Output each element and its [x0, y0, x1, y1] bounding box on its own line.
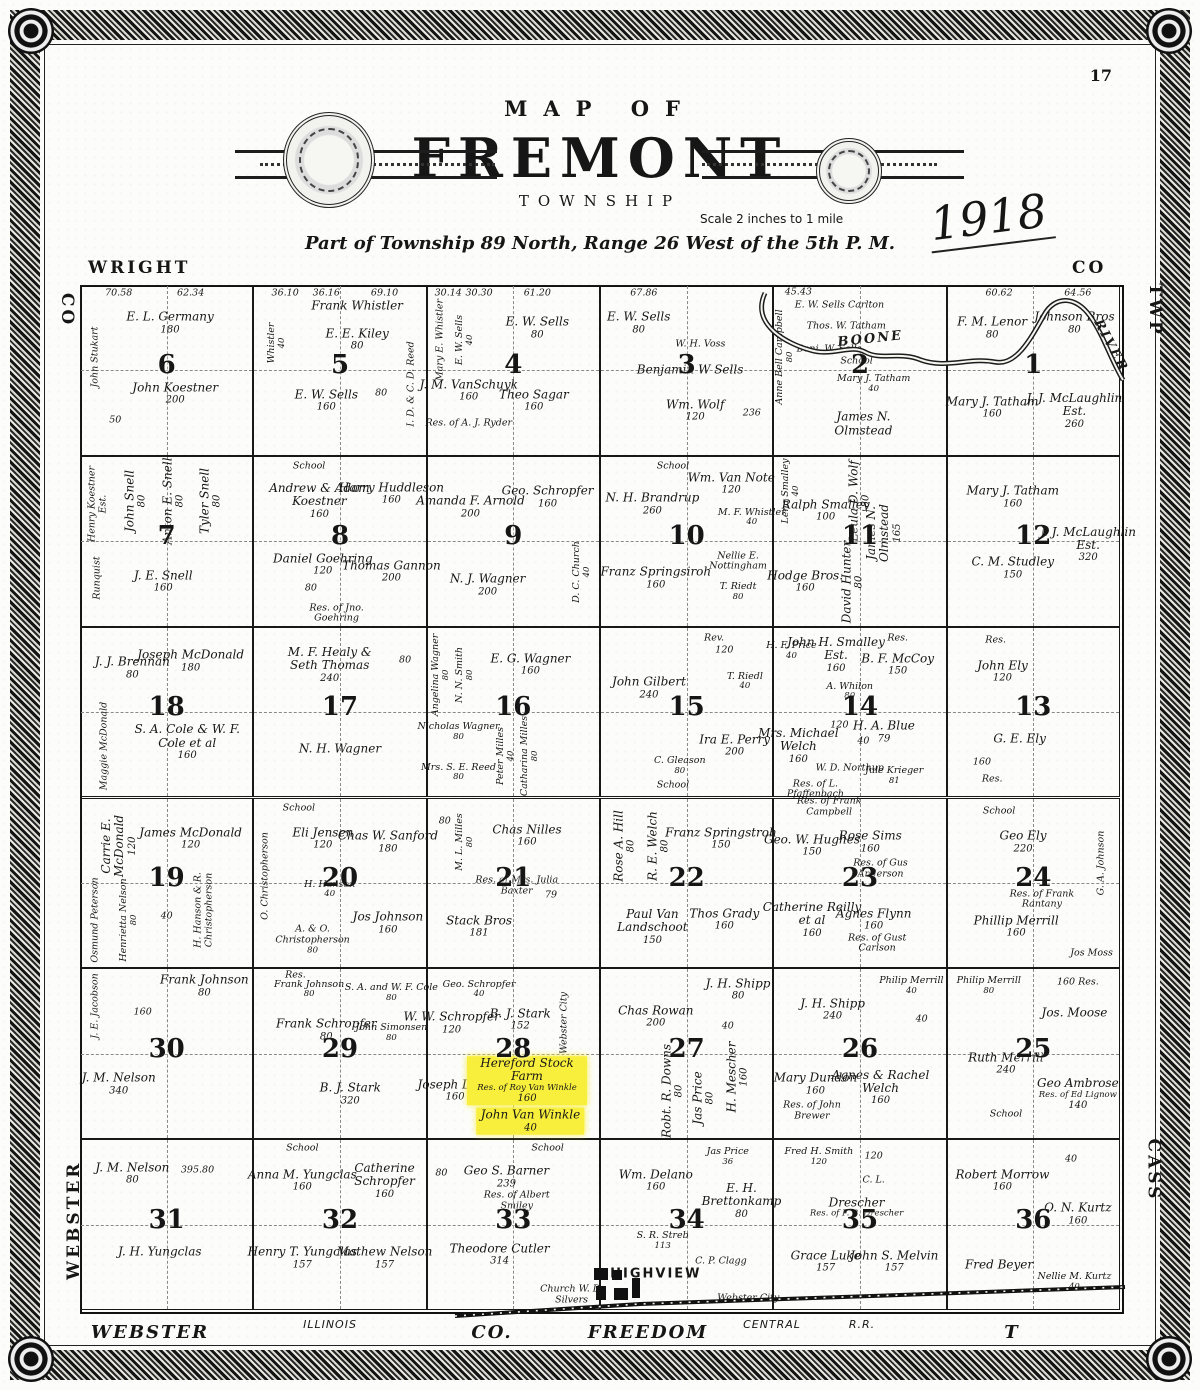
section-3: 367.86E. W. Sells80W. H. VossBenjamin W …: [600, 285, 773, 456]
parcel-label: I. D. & C. D. Reed: [407, 341, 418, 426]
parcel-label: Philip Merrill80: [957, 976, 1021, 996]
parcel-label: Fred Beyer: [965, 1258, 1033, 1271]
parcel-label: John Stukart: [91, 326, 102, 387]
parcel-label: 80: [439, 817, 451, 828]
parcel-label: J. H. Shipp80: [706, 977, 771, 1002]
parcel-label: Res. of Gust Carlson: [829, 933, 925, 954]
parcel-label: 67.86: [630, 289, 657, 300]
section-7: 7Henry Koestner Est.John Snell80Anton E.…: [80, 456, 253, 627]
parcel-label: School: [657, 781, 689, 792]
section-number: 11: [842, 521, 878, 551]
parcel-label: Stack Bros181: [446, 914, 512, 939]
section-number: 35: [842, 1205, 878, 1235]
parcel-label: School: [657, 462, 689, 473]
parcel-label: T. Riedl40: [727, 672, 763, 692]
margin-label-co-left: CO: [57, 293, 77, 327]
section-number: 33: [495, 1205, 531, 1235]
parcel-label: M. F. Healy & Seth Thomas240: [274, 646, 386, 684]
section-number: 25: [1015, 1034, 1051, 1064]
section-number: 4: [504, 350, 522, 380]
section-number: 32: [322, 1205, 358, 1235]
section-number: 20: [322, 863, 358, 893]
section-30: 30Frank Johnson80J. E. Jacobson160J. M. …: [80, 968, 253, 1139]
parcel-label: Frank Whistler: [311, 300, 403, 313]
parcel-label: Res.: [982, 774, 1003, 785]
parcel-label: Peter Milles40: [496, 727, 516, 785]
parcel-label: Anne Bell Campbell80: [775, 309, 795, 404]
parcel-label: Jos Johnson160: [353, 911, 424, 936]
section-number: 34: [669, 1205, 705, 1235]
section-25: 25Philip Merrill80160 Res.Jos. MooseRuth…: [947, 968, 1120, 1139]
parcel-label: Rose A. Hill80: [613, 810, 638, 882]
parcel-label: S. A. Cole & W. F. Cole et al160: [131, 723, 243, 761]
parcel-label: Catharina Milles80: [520, 716, 540, 796]
page-title: FREMONT: [0, 126, 1200, 190]
bottom-label-illinois: ILLINOIS: [303, 1318, 357, 1331]
corner-rosette: [1146, 8, 1192, 54]
parcel-label: E. W. Sells160: [295, 388, 358, 413]
parcel-label: Nellie M. Kurtz40: [1038, 1272, 1112, 1292]
parcel-label: E. W. Sells80: [506, 316, 569, 341]
parcel-label: 80: [399, 656, 411, 667]
parcel-label: Nicholas Wagner80: [417, 722, 499, 742]
section-number: 36: [1015, 1205, 1051, 1235]
parcel-label: 395.80: [181, 1165, 214, 1176]
parcel-label: M. F. Whistler40: [718, 508, 786, 528]
parcel-label: Jas Price36: [707, 1147, 749, 1167]
section-18: 18J. J. Brennan80Joseph McDonald180Maggi…: [80, 627, 253, 798]
parcel-label: 50: [109, 416, 121, 427]
parcel-label: 80: [305, 583, 317, 594]
parcel-label: Geo S. Barner239: [464, 1165, 549, 1190]
parcel-label: J. M. Nelson80: [95, 1162, 169, 1187]
margin-label-twp: TWP: [1145, 283, 1165, 337]
section-number: 12: [1015, 521, 1051, 551]
section-33: 3380SchoolGeo S. Barner239Res. of Albert…: [427, 1139, 600, 1310]
corner-rosette: [1146, 1336, 1192, 1382]
parcel-label: Webster City: [717, 1294, 779, 1305]
parcel-label: 61.20: [524, 289, 551, 300]
title-kicker: MAP OF: [0, 96, 1200, 121]
section-10: 10SchoolN. H. Brandrup260Wm. Van Note120…: [600, 456, 773, 627]
corner-rosette: [8, 8, 54, 54]
section-2: 245.43E. W. Sells CarltonThos. W. Tatham…: [773, 285, 946, 456]
bottom-label-freedom: FREEDOM: [588, 1322, 708, 1343]
section-number: 1: [1024, 350, 1042, 380]
section-20: 20SchoolEli Jensen120Chas W. Sanford180O…: [253, 798, 426, 969]
parcel-label: A. & O. Christopherson80: [265, 925, 361, 956]
parcel-label: Henry Koestner Est.: [88, 456, 109, 552]
parcel-label: 40: [722, 1021, 734, 1032]
section-number: 5: [331, 350, 349, 380]
parcel-label: F. M. Lenor80: [957, 316, 1027, 341]
parcel-label: 80: [375, 389, 387, 400]
section-28: 28Geo. Schropfer40W. W. Schropfer120B. J…: [427, 968, 600, 1139]
section-number: 22: [669, 863, 705, 893]
parcel-label: M. L. Milles80: [455, 814, 475, 871]
section-27: 27Chas Rowan200J. H. Shipp8040Robt. R. D…: [600, 968, 773, 1139]
parcel-label: 80: [435, 1169, 447, 1180]
section-34: 34Wm. Delano160Jas Price36E. H. Brettonk…: [600, 1139, 773, 1310]
section-number: 21: [495, 863, 531, 893]
section-number: 19: [149, 863, 185, 893]
parcel-label: Frank Johnson80: [160, 974, 249, 999]
parcel-label: 36.10: [272, 289, 299, 300]
parcel-label: Whistler40: [267, 323, 287, 364]
parcel-label: Joseph McDonald180: [137, 649, 244, 674]
parcel-label: Chas Rowan200: [618, 1004, 693, 1029]
parcel-label: John Van Winkle40: [477, 1108, 584, 1135]
section-number: 6: [158, 350, 176, 380]
section-number: 30: [149, 1034, 185, 1064]
parcel-label: Mathew Nelson157: [337, 1246, 433, 1271]
section-number: 27: [669, 1034, 705, 1064]
parcel-label: School: [983, 807, 1015, 818]
parcel-label: Catherine Schropfer160: [329, 1162, 441, 1200]
parcel-label: School: [531, 1143, 563, 1154]
section-1: 160.6264.56F. M. Lenor80Johnson Bros80Ma…: [947, 285, 1120, 456]
parcel-label: B. J. Stark320: [320, 1082, 381, 1107]
parcel-label: Res. of Jno. Goehring: [289, 603, 385, 624]
section-4: 430.1430.3061.20Mary E. WhistlerE. W. Se…: [427, 285, 600, 456]
parcel-label: Philip Merrill40: [879, 976, 943, 996]
parcel-label: Johnson Bros80: [1034, 311, 1114, 336]
section-12: 12Mary J. Tatham160C. M. Studley150J. J.…: [947, 456, 1120, 627]
parcel-label: 60.62: [985, 289, 1012, 300]
parcel-label: H. Mescher160: [726, 1042, 751, 1113]
parcel-label: Church W. D. Silvers: [524, 1285, 620, 1306]
section-24: 24SchoolGeo Ely220G. A. JohnsonRes. of F…: [947, 798, 1120, 969]
parcel-label: Mrs. Michael Welch160: [742, 727, 854, 765]
parcel-label: Frank Johnson80: [274, 980, 344, 1000]
section-number: 28: [495, 1034, 531, 1064]
parcel-label: Res.: [985, 636, 1006, 647]
margin-label-co-topright: CO: [1072, 258, 1106, 278]
parcel-label: Henrietta Nelson80: [119, 878, 139, 961]
parcel-label: 120: [715, 646, 733, 657]
parcel-label: Agnes & Rachel Welch160: [825, 1068, 937, 1106]
parcel-label: Jos. Moose: [1042, 1007, 1108, 1020]
parcel-label: 120: [865, 1152, 883, 1163]
section-13: 13Res.John Ely120G. E. Ely160Res.: [947, 627, 1120, 798]
parcel-label: Mary E. Whistler: [436, 299, 447, 381]
margin-label-wright: WRIGHT: [88, 258, 190, 278]
parcel-label: E. E. Kiley80: [325, 328, 388, 353]
parcel-label: J. J. McLaughlin Est.260: [1018, 392, 1130, 430]
parcel-label: J. M. Nelson340: [82, 1072, 156, 1097]
parcel-label: C. P. Clagg: [695, 1256, 747, 1267]
parcel-label: Wm. Delano160: [619, 1168, 693, 1193]
section-number: 31: [149, 1205, 185, 1235]
margin-label-cass: CASS: [1143, 1139, 1163, 1202]
page-number: 17: [1090, 66, 1112, 85]
parcel-label: Jos Moss: [1070, 949, 1113, 960]
parcel-label: Theodore Cutler314: [450, 1243, 550, 1268]
parcel-label: Franz Springstroh150: [665, 827, 777, 852]
right-seal-ornament: [816, 138, 882, 204]
parcel-label: N. J. Wagner200: [450, 573, 526, 598]
parcel-label: H. Hanson & R. Christopherson: [194, 862, 215, 958]
title-subtitle: TOWNSHIP: [0, 192, 1200, 210]
section-16: 16Angelina Wagner80N. N. Smith80E. G. Wa…: [427, 627, 600, 798]
section-21: 2180M. L. Milles80Chas Nilles160Res. of …: [427, 798, 600, 969]
section-17: 17M. F. Healy & Seth Thomas24080N. H. Wa…: [253, 627, 426, 798]
parcel-label: T. Riedt80: [720, 582, 757, 602]
parcel-label: 30.30: [465, 289, 492, 300]
bottom-label-webster: WEBSTER: [91, 1322, 209, 1343]
parcel-label: O. Christopherson: [261, 832, 272, 920]
parcel-label: B. J. Stark152: [490, 1008, 551, 1033]
parcel-label: J. E. Snell160: [134, 569, 193, 594]
parcel-label: 160: [973, 757, 991, 768]
section-26: 26J. H. Shipp240Philip Merrill4040Mary D…: [773, 968, 946, 1139]
parcel-label: Thomas Gannon200: [342, 559, 441, 584]
parcel-label: Osmund Peterson: [91, 877, 102, 962]
parcel-label: Wm. Van Note120: [688, 472, 775, 497]
parcel-label: Mrs. S. E. Reed80: [421, 763, 496, 783]
parcel-label: N. H. Brandrup260: [606, 492, 700, 517]
parcel-label: Geo AmbroseRes. of Ed Lignow140: [1037, 1077, 1119, 1111]
parcel-label: N. N. Smith80: [455, 647, 475, 703]
parcel-label: John Ely120: [977, 659, 1028, 684]
section-number: 10: [669, 521, 705, 551]
legal-description: Part of Township 89 North, Range 26 West…: [0, 233, 1200, 254]
parcel-label: Angelina Wagner80: [431, 634, 451, 717]
section-6: 670.5862.34E. L. Germany180John StukartJ…: [80, 285, 253, 456]
parcel-label: Rose Sims160: [839, 830, 902, 855]
parcel-label: 160: [134, 1008, 152, 1019]
section-number: 13: [1015, 692, 1051, 722]
parcel-label: C. Gleason80: [654, 756, 706, 776]
parcel-label: John S. Melvin157: [850, 1249, 938, 1274]
parcel-label: James McDonald120: [139, 827, 242, 852]
parcel-label: E. W. Sells Carlton: [795, 301, 884, 312]
parcel-label: B. F. McCoy150: [861, 652, 934, 677]
plat-map-page: { "page":{"number":"17","year":"1918"}, …: [0, 0, 1200, 1390]
parcel-label: James N. Olmstead: [807, 411, 919, 438]
section-29: 29Res.Frank Johnson80S. A. and W. F. Col…: [253, 968, 426, 1139]
parcel-label: 40: [161, 911, 173, 922]
parcel-label: School: [283, 803, 315, 814]
section-number: 7: [158, 521, 176, 551]
parcel-label: J. H. Yungclas: [118, 1245, 202, 1258]
section-number: 14: [842, 692, 878, 722]
parcel-label: Runquist: [93, 557, 104, 600]
parcel-label: Fred H. Smith120: [785, 1147, 854, 1167]
parcel-label: N. H. Wagner: [299, 742, 381, 755]
parcel-label: C. L.: [863, 1175, 885, 1186]
parcel-label: 79: [545, 891, 557, 902]
section-number: 8: [331, 521, 349, 551]
parcel-label: D. C. Church40: [572, 541, 592, 603]
parcel-label: E. W. Sells80: [607, 311, 670, 336]
parcel-label: W. W. Schropfer120: [403, 1011, 499, 1036]
parcel-label: G. E. Ely: [993, 732, 1046, 745]
parcel-label: 160 Res.: [1057, 978, 1099, 989]
parcel-label: 62.34: [177, 289, 204, 300]
section-23: 23Res. of Frank CampbellGeo. W. Hughes15…: [773, 798, 946, 969]
section-9: 9Amanda F. Arnold200Geo. Schropfer160N. …: [427, 456, 600, 627]
section-36: 36Robert Morrow16040O. N. Kurtz160Fred B…: [947, 1139, 1120, 1310]
section-number: 23: [842, 863, 878, 893]
parcel-label: School: [293, 462, 325, 473]
parcel-label: W. H. Voss: [675, 340, 725, 351]
bottom-label-central: CENTRAL: [743, 1318, 801, 1331]
town-label: HIGHVIEW: [610, 1268, 701, 1283]
section-number: 2: [851, 350, 869, 380]
parcel-label: Thos Grady160: [689, 908, 759, 933]
parcel-label: S. A. and W. F. Cole80: [345, 983, 438, 1003]
section-number: 24: [1015, 863, 1051, 893]
parcel-label: Robert Morrow160: [956, 1168, 1050, 1193]
parcel-label: Mary J. Tatham40: [837, 374, 910, 394]
section-number: 26: [842, 1034, 878, 1064]
parcel-label: O. N. Kurtz160: [1044, 1202, 1111, 1227]
section-number: 29: [322, 1034, 358, 1064]
parcel-label: Theo Sagar160: [499, 388, 569, 413]
parcel-label: Geo. Schropfer40: [443, 980, 516, 1000]
parcel-label: E. L. Germany180: [126, 311, 213, 336]
parcel-label: J. H. Shipp240: [800, 998, 865, 1023]
parcel-label: Chas Nilles160: [492, 823, 561, 848]
parcel-label: Geo. Schropfer160: [502, 485, 594, 510]
parcel-label: 70.58: [105, 289, 132, 300]
section-32: 32SchoolAnna M. Yungclas160Catherine Sch…: [253, 1139, 426, 1310]
parcel-label: E. W. Sells40: [455, 315, 475, 365]
parcel-label: Res.: [887, 634, 908, 645]
section-number: 9: [504, 521, 522, 551]
parcel-label: Rev.: [704, 634, 724, 645]
section-15: 15Rev.John Gilbert240120T. Riedl40C. Gle…: [600, 627, 773, 798]
parcel-label: J. E. Jacobson: [91, 974, 102, 1039]
parcel-label: Webster City: [559, 992, 570, 1054]
parcel-label: Tyler Snell80: [199, 468, 224, 534]
section-8: 8SchoolAndrew & Adam Koestner160Harry Hu…: [253, 456, 426, 627]
section-number: 16: [495, 692, 531, 722]
parcel-label: Chas W. Sanford180: [338, 830, 438, 855]
section-number: 18: [149, 692, 185, 722]
section-19: 19Carrie E. McDonald120James McDonald120…: [80, 798, 253, 969]
parcel-label: 40: [1065, 1155, 1077, 1166]
section-number: 3: [678, 350, 696, 380]
section-11: 11Lena Smalley40Ralph Smalley100Leula D.…: [773, 456, 946, 627]
parcel-label: School: [286, 1143, 318, 1154]
scale-note: Scale 2 inches to 1 mile: [700, 212, 843, 226]
left-seal-ornament: [283, 112, 375, 208]
parcel-label: Geo Ely220: [999, 830, 1046, 855]
parcel-label: Hodge Bros.160: [767, 569, 843, 594]
section-5: 536.1036.1669.10Frank WhistlerWhistler40…: [253, 285, 426, 456]
bottom-label-co: CO.: [471, 1322, 512, 1343]
section-number: 15: [669, 692, 705, 722]
section-35: 35Fred H. Smith120120C. L.DrescherRes. o…: [773, 1139, 946, 1310]
section-31: 31J. M. Nelson80395.80J. H. Yungclas: [80, 1139, 253, 1310]
parcel-label: Agnes Flynn160: [836, 908, 912, 933]
parcel-label: Wm. Wolf120: [666, 399, 724, 424]
bottom-label-t: T: [1004, 1322, 1019, 1343]
parcel-label: Jule Krieger81: [865, 766, 923, 786]
corner-rosette: [8, 1336, 54, 1382]
parcel-label: Thos. W. Tatham: [807, 321, 886, 332]
section-22: 22Rose A. Hill80R. E. Welch80Franz Sprin…: [600, 798, 773, 969]
parcel-label: John Koestner200: [132, 382, 218, 407]
parcel-label: School: [990, 1109, 1022, 1120]
parcel-label: Res. of Frank Campbell: [781, 796, 877, 817]
parcel-label: G. A. Johnson: [1097, 830, 1108, 895]
parcel-label: Phillip Merrill160: [974, 914, 1059, 939]
parcel-label: E. G. Wagner160: [491, 652, 571, 677]
parcel-label: 40: [916, 1015, 928, 1026]
parcel-label: John Snell80: [124, 470, 149, 532]
parcel-label: H. A. Blue79: [853, 720, 915, 745]
bottom-label-rr: R.R.: [849, 1318, 875, 1331]
parcel-label: David Hunter80: [841, 541, 866, 623]
parcel-label: Jas Price80: [691, 1071, 716, 1124]
parcel-label: Mary J. Tatham160: [966, 485, 1059, 510]
section-14: 14H. F. Price40John H. Smalley Est.160A.…: [773, 627, 946, 798]
parcel-label: 45.43: [785, 287, 812, 298]
parcel-label: 64.56: [1064, 289, 1091, 300]
parcel-label: Res. of A. J. Ryder: [425, 419, 512, 430]
section-number: 17: [322, 692, 358, 722]
parcel-label: Maggie McDonald: [100, 702, 111, 791]
parcel-label: 236: [743, 409, 761, 420]
